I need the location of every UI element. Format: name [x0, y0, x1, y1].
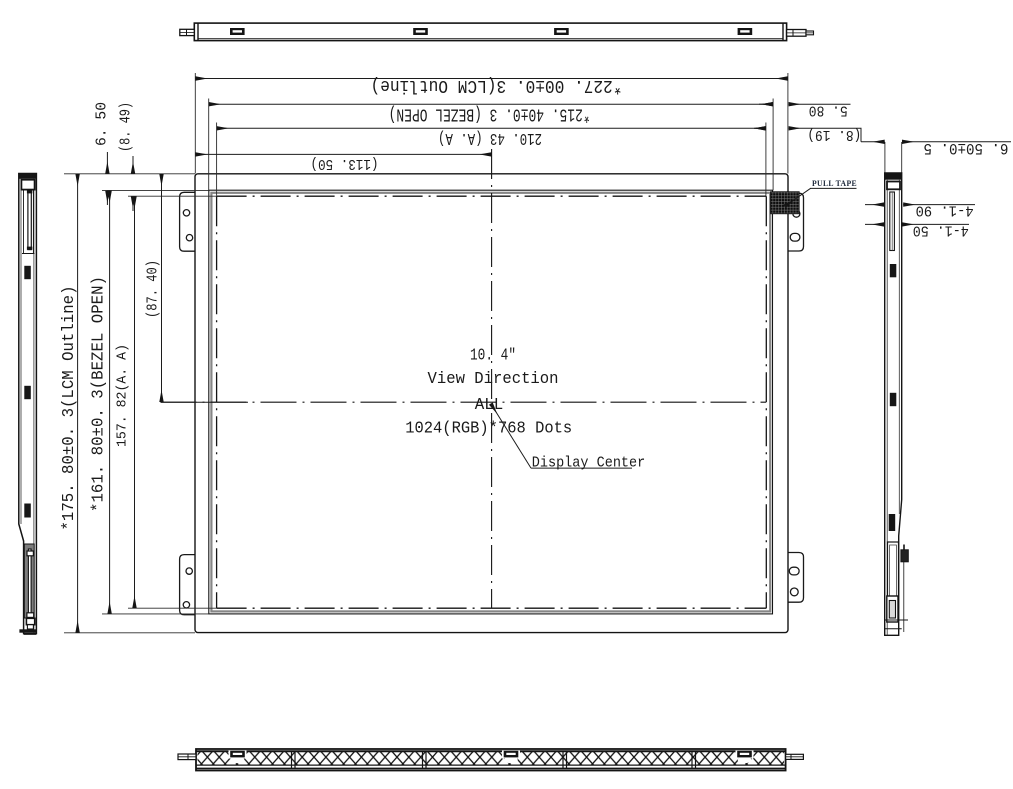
svg-text:210. 43 (A. A): 210. 43 (A. A)	[438, 129, 542, 148]
svg-text:*215. 40±0. 3 (BEZEL OPEN): *215. 40±0. 3 (BEZEL OPEN)	[389, 103, 591, 123]
svg-text:6. 50: 6. 50	[93, 102, 110, 146]
svg-text:View Direction: View Direction	[428, 369, 559, 388]
svg-text:(8. 19): (8. 19)	[807, 126, 861, 143]
svg-text:4-1. 50: 4-1. 50	[913, 221, 969, 238]
svg-text:Display Center: Display Center	[532, 455, 646, 471]
svg-text:PULL TAPE: PULL TAPE	[812, 179, 857, 188]
svg-text:4-1. 90: 4-1. 90	[916, 202, 974, 219]
svg-text:5. 80: 5. 80	[809, 101, 848, 118]
svg-text:*161. 80±0. 3(BEZEL OPEN): *161. 80±0. 3(BEZEL OPEN)	[89, 276, 108, 512]
svg-text:*227. 00±0. 3(LCM Outline): *227. 00±0. 3(LCM Outline)	[371, 75, 623, 95]
svg-text:10. 4″: 10. 4″	[470, 346, 516, 365]
svg-text:(87. 40): (87. 40)	[145, 260, 161, 318]
svg-text:*175. 80±0. 3(LCM Outline): *175. 80±0. 3(LCM Outline)	[59, 286, 78, 531]
svg-text:ALL: ALL	[475, 395, 504, 414]
svg-text:(113. 50): (113. 50)	[311, 155, 379, 172]
svg-text:157. 82(A. A): 157. 82(A. A)	[115, 344, 131, 447]
svg-text:6. 50±0. 5: 6. 50±0. 5	[924, 139, 1009, 157]
svg-text:(8. 49): (8. 49)	[118, 102, 135, 152]
svg-text:1024(RGB)*768 Dots: 1024(RGB)*768 Dots	[405, 419, 572, 438]
